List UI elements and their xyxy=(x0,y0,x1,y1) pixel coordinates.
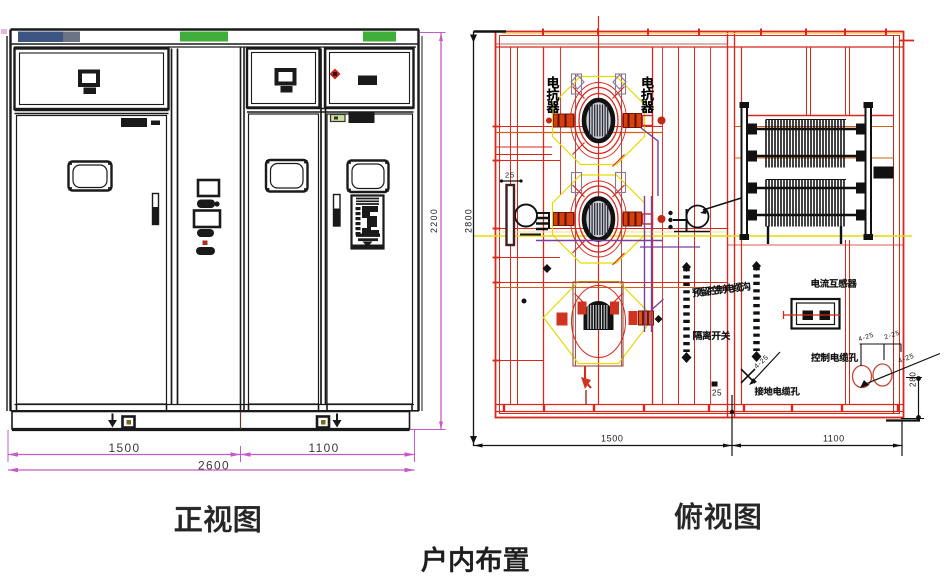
svg-text:1100: 1100 xyxy=(309,441,340,455)
svg-text:2600: 2600 xyxy=(198,458,230,472)
svg-text:25: 25 xyxy=(712,388,722,397)
svg-text:2-25: 2-25 xyxy=(884,330,901,342)
svg-text:2200: 2200 xyxy=(429,208,439,233)
svg-text:4-25: 4-25 xyxy=(897,353,915,365)
svg-text:25: 25 xyxy=(505,170,515,179)
svg-text:280: 280 xyxy=(908,371,917,387)
svg-text:1500: 1500 xyxy=(109,441,141,455)
svg-text:1500: 1500 xyxy=(601,433,623,443)
svg-text:4-25: 4-25 xyxy=(858,332,875,344)
svg-text:1100: 1100 xyxy=(823,433,845,443)
svg-text:2800: 2800 xyxy=(464,208,474,233)
